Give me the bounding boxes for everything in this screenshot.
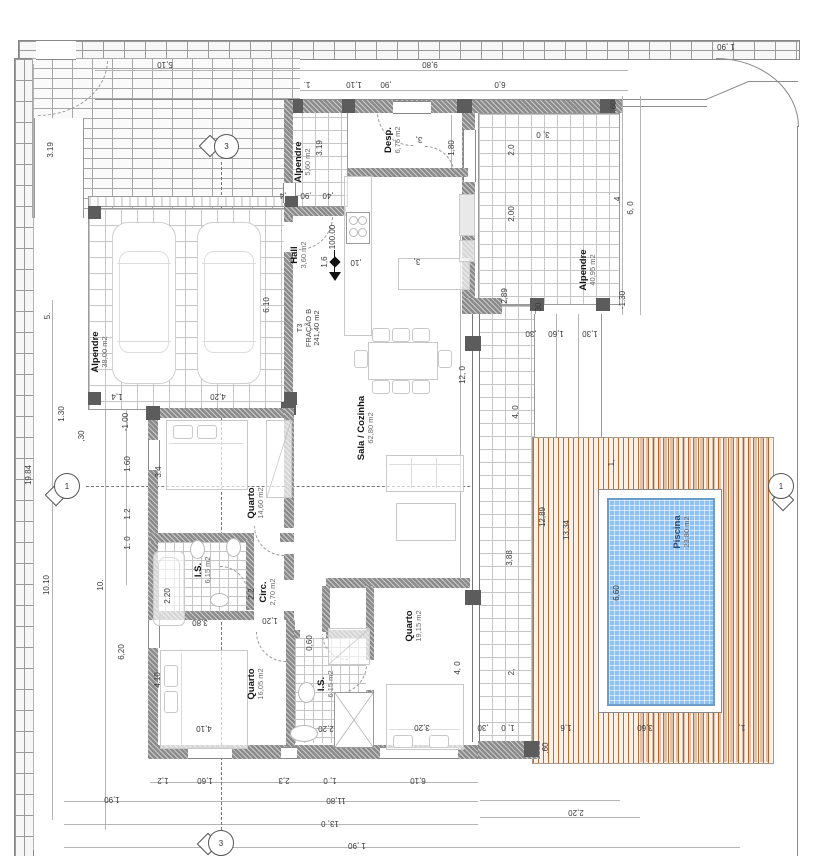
dim-label: ,10 xyxy=(350,258,361,266)
car xyxy=(112,222,176,384)
dim-label: 3,80 xyxy=(192,618,208,626)
chair xyxy=(412,328,430,342)
room-label-hall: Hall3,60 m2 xyxy=(290,241,308,268)
dim-label: ,40 xyxy=(322,191,333,199)
dim-label: ,90 xyxy=(380,80,391,88)
column xyxy=(88,392,101,405)
dim-label: 2,00 xyxy=(508,206,516,222)
dim-label: -1.00 xyxy=(122,413,130,431)
stove xyxy=(346,212,370,244)
terrace-strip xyxy=(478,305,536,747)
dim-label: 4, 0 xyxy=(512,405,520,418)
dim-label: 1.2 xyxy=(124,508,132,519)
driveway-edge-line3 xyxy=(748,81,798,82)
dim-label: 6,0 xyxy=(494,80,505,88)
dim-label: 2,20 xyxy=(568,808,584,816)
door-arc-bedroom2 xyxy=(256,632,286,662)
wall xyxy=(148,408,294,418)
dim-label: 6,20 xyxy=(118,644,126,660)
dim-label: 1. 0 xyxy=(124,536,132,549)
chair xyxy=(392,380,410,394)
dim-label: 6, 0 xyxy=(627,201,635,214)
kitchen-counter xyxy=(344,176,372,336)
dim-label: ,30 xyxy=(78,430,86,441)
section-marker-top: 3 xyxy=(214,134,239,159)
dim-label: 1,20 xyxy=(262,616,278,624)
column xyxy=(465,336,481,351)
coffee-table xyxy=(396,503,456,541)
column xyxy=(88,206,101,219)
wall xyxy=(284,554,294,580)
dim-label: 0,60 xyxy=(306,635,314,651)
dim-label: 12, 0 xyxy=(459,366,467,384)
dim-line xyxy=(95,70,628,71)
room-label-pool: Piscina23,80 m2 xyxy=(673,515,691,548)
room-label-bedroom3: Quarto19,15 m2 xyxy=(405,610,423,641)
dim-label: 2,0 xyxy=(508,144,516,155)
dim-label: 2.20 xyxy=(164,588,172,604)
dim-label: 1, 0 xyxy=(323,776,336,784)
dim-label: 3, xyxy=(416,135,423,143)
level-marker-icon xyxy=(329,256,340,267)
dim-label: 1,80 xyxy=(448,140,456,156)
dim-line xyxy=(640,96,641,315)
dim-label: 13, 0 xyxy=(321,819,339,827)
dim-line xyxy=(480,817,640,818)
washbasin xyxy=(298,682,315,703)
dim-label: -1.30 xyxy=(619,291,627,309)
dim-label: 2, xyxy=(508,669,516,676)
dim-label: 1. xyxy=(304,80,311,88)
wall xyxy=(326,578,470,588)
dim-label: 4,10 xyxy=(196,724,212,732)
wardrobe xyxy=(328,628,370,665)
dim-label: 3.19 xyxy=(47,142,55,158)
bed xyxy=(386,684,464,750)
sofa xyxy=(386,455,464,492)
dim-label: 3,20 xyxy=(414,723,430,731)
dim-label: .60 xyxy=(610,100,618,111)
room-label-bath1: I.S.6,15 m2 xyxy=(194,556,212,583)
wall xyxy=(284,207,346,216)
section-marker-bottom: 3 xyxy=(208,830,234,856)
room-label-living: Sala / Cozinha62,80 m2 xyxy=(357,396,375,460)
room-label-porch-large: Alpendre40,95 m2 xyxy=(579,249,597,290)
dim-label: ,30 xyxy=(525,329,536,337)
dim-line xyxy=(64,824,478,825)
toilet xyxy=(290,725,318,742)
dim-label: 2.2 xyxy=(248,588,256,599)
gate-swing-arc xyxy=(38,60,108,116)
chair xyxy=(412,380,430,394)
wall xyxy=(322,586,330,632)
dim-label: ,90 xyxy=(300,191,311,199)
chair xyxy=(372,380,390,394)
dim-label: 3.19 xyxy=(316,140,324,156)
door-arc-bath1 xyxy=(220,566,248,594)
property-line-right xyxy=(797,126,798,856)
room-label-pantry: Desp.6,75 m2 xyxy=(384,126,402,153)
room-label-circulation: Circ.2,70 m2 xyxy=(259,578,277,605)
dim-label: 4, 0 xyxy=(454,661,462,674)
dim-label: ,30 xyxy=(477,723,488,731)
column xyxy=(342,99,355,113)
section-marker-right: 1 xyxy=(768,473,794,499)
dim-label: 4,20 xyxy=(210,392,226,400)
carport-beam xyxy=(88,196,300,207)
column xyxy=(596,298,610,311)
dim-line xyxy=(126,410,127,585)
dim-label: 4.10 xyxy=(154,672,162,688)
dim-label: 3,60 xyxy=(637,723,653,731)
dim-label: 6.10 xyxy=(263,297,271,313)
floor-plan: 100.00 Alpendre38,00 m2 Alpendre5,60 m2 … xyxy=(0,0,816,856)
glazed-wall xyxy=(472,314,480,742)
dim-label: 1,4 xyxy=(111,392,122,400)
kitchen-island xyxy=(398,258,470,290)
dim-line xyxy=(480,800,620,801)
dim-line xyxy=(300,90,628,91)
boundary-corner-curve xyxy=(716,58,799,127)
dim-label: ,4 xyxy=(280,191,287,199)
door-arc-bedroom1 xyxy=(254,526,284,556)
room-label-porch-small: Alpendre5,60 m2 xyxy=(294,141,312,182)
dim-label: 3, 0 xyxy=(536,130,549,138)
boundary-wall-top xyxy=(18,40,800,60)
dim-label: 3,88 xyxy=(506,550,514,566)
kitchen-sink xyxy=(459,240,475,262)
bed xyxy=(160,650,248,749)
column xyxy=(146,406,160,420)
dim-label: 1.60 xyxy=(124,456,132,472)
dim-line xyxy=(64,847,740,848)
dim-label: 1, xyxy=(608,460,616,467)
dim-label: 1,6 xyxy=(560,723,571,731)
dim-label: 2,20 xyxy=(318,724,334,732)
dim-label: 19.84 xyxy=(25,465,33,485)
dim-line xyxy=(64,801,478,802)
wall xyxy=(290,100,622,113)
column xyxy=(284,392,297,405)
wardrobe xyxy=(266,420,292,498)
dim-label: 1,10 xyxy=(346,80,362,88)
porch-floor-large xyxy=(478,113,620,305)
chair xyxy=(438,350,452,368)
section-marker-left: 1 xyxy=(54,473,80,499)
wall xyxy=(284,611,294,620)
bed xyxy=(166,420,248,490)
dim-label: 5,10 xyxy=(157,60,173,68)
room-label-bedroom1: Quarto14,60 m2 xyxy=(247,487,265,518)
dim-label: 1,60 xyxy=(197,776,213,784)
dim-line xyxy=(33,64,34,850)
level-value: 100.00 xyxy=(329,225,337,249)
dim-line xyxy=(52,300,53,820)
column xyxy=(465,590,481,605)
entry-walkway xyxy=(34,118,84,218)
shower xyxy=(334,692,374,748)
dim-label: 1,90 xyxy=(104,795,120,803)
wall xyxy=(462,298,502,314)
dim-label: 30 xyxy=(535,303,543,312)
dim-label: 6,10 xyxy=(410,776,426,784)
column xyxy=(457,99,472,113)
path-line xyxy=(578,314,579,437)
chair xyxy=(354,350,368,368)
dim-label: 1,6 xyxy=(321,256,329,267)
dim-label: 1 ,90 xyxy=(717,42,735,50)
room-label-carport: Alpendre38,00 m2 xyxy=(91,331,109,372)
column xyxy=(524,741,539,757)
dim-label: 2,89 xyxy=(501,288,509,304)
entry-arrow-icon xyxy=(329,272,341,281)
dining-table xyxy=(368,342,438,380)
door-arc-bedroom3 xyxy=(337,664,367,694)
dim-label: 13,34 xyxy=(563,520,571,540)
dim-label: 3.4 xyxy=(155,466,163,477)
dim-label: 1,60 xyxy=(548,329,564,337)
dim-label: 1, xyxy=(739,723,746,731)
unit-label: T3FRAÇÃO B241,40 m2 xyxy=(296,309,322,347)
chair xyxy=(392,328,410,342)
dim-label: 1,30 xyxy=(582,329,598,337)
kitchen-appliance xyxy=(459,194,475,236)
dim-label: 11,80 xyxy=(326,796,345,804)
dim-label: 1 ,90 xyxy=(348,841,366,849)
dim-label: 10. xyxy=(97,579,105,590)
boundary-wall-left xyxy=(14,58,34,856)
gate-opening xyxy=(36,40,76,60)
dim-label: .4 xyxy=(614,197,622,204)
dim-label: 1, 0 xyxy=(501,723,514,731)
dim-label: 1,2 xyxy=(157,776,168,784)
dim-label: 1.30 xyxy=(58,406,66,422)
washbasin xyxy=(210,593,229,607)
room-label-bedroom2: Quarto16,05 m2 xyxy=(247,668,265,699)
dim-label: 2,3 xyxy=(278,776,289,784)
dim-label: 12,89 xyxy=(539,507,547,527)
car xyxy=(197,222,261,384)
dim-label: .60 xyxy=(542,742,550,753)
chair xyxy=(372,328,390,342)
door-opening xyxy=(281,747,297,759)
dim-label: 9,80 xyxy=(422,60,438,68)
room-label-bath2: I.S.6,15 m2 xyxy=(317,670,335,697)
dim-line xyxy=(622,96,623,315)
dim-label: 10.10 xyxy=(43,575,51,595)
dim-label: 3, xyxy=(414,257,421,265)
dim-label: 5. xyxy=(44,313,52,320)
dim-label: 6,60 xyxy=(613,585,621,601)
pool-water xyxy=(607,498,715,706)
bidet xyxy=(226,538,241,557)
